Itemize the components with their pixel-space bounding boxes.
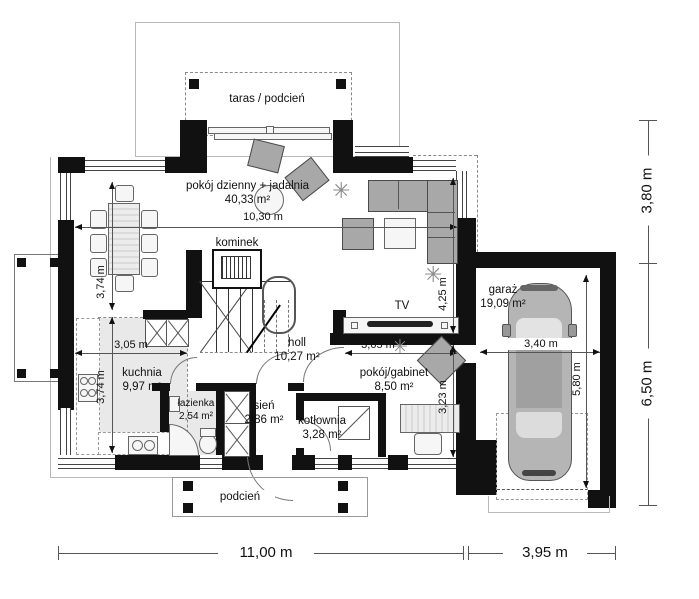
door-handle — [266, 126, 274, 134]
dimension-label: 4,25 m — [437, 264, 449, 324]
wall — [288, 383, 304, 391]
arrow — [180, 350, 187, 356]
kitchen-cabinet — [166, 319, 189, 347]
pergola-post — [17, 369, 26, 378]
room-label-lazienka: łazienka 2,54 m² — [170, 398, 222, 423]
porch-post — [338, 503, 348, 513]
room-label-garaz: garaż 19,09 m² — [468, 283, 538, 312]
room-name: sień — [239, 399, 289, 413]
dimension-label: 10,30 m — [213, 211, 313, 223]
arrow — [583, 481, 589, 488]
toilet-tank — [200, 428, 216, 437]
room-area: 9,97 m² — [107, 380, 177, 394]
wall — [476, 252, 616, 268]
window — [413, 160, 456, 171]
car-mirror — [568, 324, 577, 337]
room-label-gabinet: pokój/gabinet 8,50 m² — [349, 366, 439, 395]
room-name: kotłownia — [287, 414, 357, 428]
tick — [639, 505, 657, 506]
fireplace-insert — [221, 256, 251, 279]
porch-post — [183, 503, 193, 513]
room-name: kuchnia — [107, 366, 177, 380]
room-name: łazienka — [170, 398, 222, 411]
burner — [80, 377, 88, 385]
room-name: pokój/gabinet — [349, 366, 439, 380]
wall — [180, 120, 207, 173]
tv-label: TV — [390, 299, 414, 313]
chair — [90, 234, 107, 253]
arrow — [75, 350, 82, 356]
wall — [115, 455, 200, 470]
room-name: pokój dzienny + jadalnia — [165, 179, 330, 193]
arrow — [75, 224, 82, 230]
room-area: 40,33 m² — [165, 193, 330, 207]
room-area: 2,54 m² — [170, 411, 222, 424]
stair-step — [228, 281, 229, 352]
wall — [378, 401, 386, 457]
toilet — [199, 434, 217, 454]
dimension-line — [75, 353, 187, 354]
room-label-kominek: kominek — [202, 236, 272, 250]
room-name: kominek — [202, 236, 272, 250]
room-area: 8,50 m² — [349, 380, 439, 394]
window — [60, 173, 71, 220]
arrow — [450, 450, 456, 457]
dimension-label: 6,50 m — [639, 349, 656, 419]
wall-chimney — [186, 250, 202, 318]
tick — [468, 546, 469, 560]
desk-chair — [414, 433, 442, 455]
wall — [333, 120, 353, 173]
stair-handrail — [262, 276, 296, 334]
room-label-sien: sień 2,86 m² — [239, 399, 289, 428]
kitchen-boundary-dashed — [98, 317, 143, 318]
arrow — [480, 349, 487, 355]
dimension-label: 3,40 m — [508, 338, 574, 350]
room-area: 10,27 m² — [262, 350, 332, 364]
dimension-line — [112, 317, 113, 453]
wall — [292, 455, 315, 470]
sink-bowl — [132, 440, 143, 451]
chair — [115, 275, 134, 292]
wall — [338, 455, 352, 470]
arrow — [109, 303, 115, 310]
room-label-podcien: podcień — [205, 490, 275, 504]
dimension-line — [453, 178, 454, 333]
wall — [600, 252, 616, 508]
pergola-outline — [14, 254, 64, 382]
wall — [388, 455, 408, 470]
tv-screen — [367, 321, 433, 327]
car-rear-bumper — [522, 470, 556, 476]
wall — [58, 220, 74, 410]
tick — [639, 120, 657, 121]
sofa-seam — [428, 212, 455, 213]
burner — [80, 389, 88, 397]
window — [85, 160, 165, 171]
chair — [141, 258, 158, 277]
stair-step — [240, 281, 241, 352]
car-roof — [516, 346, 562, 408]
arrow — [109, 446, 115, 453]
dimension-label: 3,74 m — [95, 357, 107, 417]
dimension-label: 3,80 m — [639, 156, 656, 226]
arrow — [583, 275, 589, 282]
arrow — [593, 349, 600, 355]
floor-plan: taras / podcień — [0, 0, 699, 599]
dimension-line — [586, 275, 587, 488]
sink-bowl — [144, 440, 155, 451]
room-area: 3,28 m² — [287, 428, 357, 442]
chair — [141, 234, 158, 253]
porch-post — [338, 481, 348, 491]
wall — [143, 310, 188, 319]
car-mirror — [502, 324, 511, 337]
stair-step — [216, 281, 217, 352]
room-label-holl: holl 10,27 m² — [262, 336, 332, 365]
loveseat — [342, 218, 374, 250]
sliding-door — [214, 133, 332, 140]
room-label-kuchnia: kuchnia 9,97 m² — [107, 366, 177, 395]
car-rear-window — [516, 412, 562, 438]
window — [352, 458, 388, 469]
sofa-seam — [398, 181, 399, 209]
room-label-taras: taras / podcień — [197, 92, 337, 106]
dimension-label: 3,95 m — [503, 544, 587, 561]
dimension-label: 5,80 m — [571, 349, 583, 409]
room-name: holl — [262, 336, 332, 350]
wall — [456, 440, 497, 495]
window — [355, 146, 409, 157]
dimension-label: 3,74 m — [95, 252, 107, 312]
eave-dashed-right — [477, 155, 478, 262]
sofa-seam — [428, 237, 455, 238]
porch-post — [183, 481, 193, 491]
wall — [196, 383, 256, 391]
dimension-line — [453, 345, 454, 457]
arrow — [109, 182, 115, 189]
arrow — [109, 317, 115, 324]
speaker — [351, 322, 358, 329]
room-label-kotlownia: kotłownia 3,28 m² — [287, 414, 357, 443]
tick — [615, 546, 616, 560]
room-label-living: pokój dzienny + jadalnia 40,33 m² — [165, 179, 330, 208]
terrace-post — [189, 79, 199, 89]
tick — [58, 546, 59, 560]
tick — [639, 263, 657, 264]
tv-text: TV — [390, 299, 414, 313]
room-name: garaż — [468, 283, 538, 297]
wall — [58, 157, 85, 173]
dimension-label: 3,05 m — [343, 339, 413, 351]
room-area: 19,09 m² — [468, 297, 538, 311]
dimension-label: 11,00 m — [218, 544, 314, 561]
arrow — [450, 178, 456, 185]
room-name: taras / podcień — [197, 92, 337, 106]
dimension-line — [345, 353, 457, 354]
pergola-post — [17, 258, 26, 267]
window — [408, 458, 456, 469]
dimension-label: 3,05 m — [96, 339, 166, 351]
eave-dashed-top-right — [413, 155, 477, 156]
window — [315, 458, 338, 469]
dimension-line — [112, 182, 113, 310]
plant-icon: ✳ — [332, 180, 350, 202]
dimension-line — [75, 227, 457, 228]
chair — [115, 185, 134, 202]
wardrobe — [224, 423, 250, 457]
window — [60, 408, 71, 455]
window — [200, 458, 222, 469]
room-area: 2,86 m² — [239, 413, 289, 427]
arrow — [450, 345, 456, 352]
arrow — [450, 326, 456, 333]
terrace-post — [336, 79, 346, 89]
coffee-table — [384, 218, 416, 249]
room-name: podcień — [205, 490, 275, 504]
tick — [463, 546, 464, 560]
desk — [400, 404, 460, 433]
dimension-label: 3,23 m — [437, 367, 449, 427]
wall — [353, 157, 413, 173]
window — [58, 458, 115, 469]
